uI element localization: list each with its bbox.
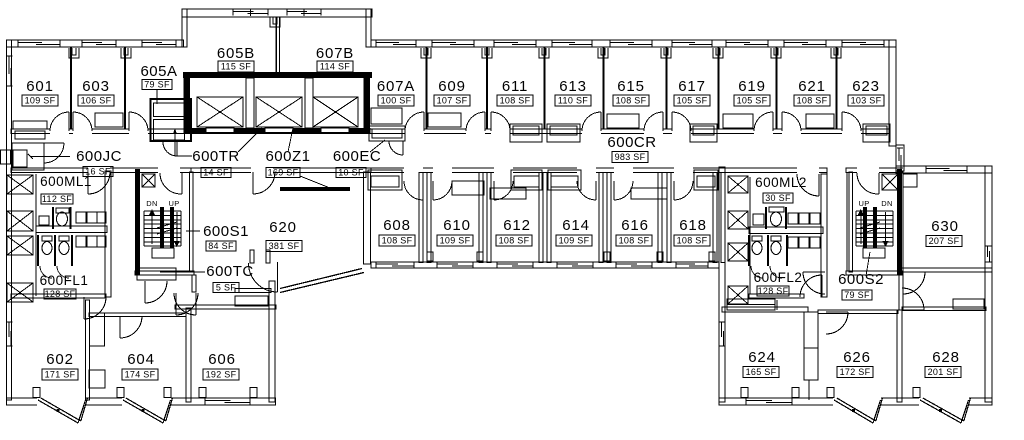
svg-text:171 SF: 171 SF <box>45 370 76 380</box>
svg-text:600FL2: 600FL2 <box>754 270 803 285</box>
svg-text:109 SF: 109 SF <box>440 236 471 246</box>
svg-text:109 SF: 109 SF <box>25 96 56 106</box>
svg-text:165 SF: 165 SF <box>746 367 777 377</box>
svg-text:79 SF: 79 SF <box>844 290 870 300</box>
svg-text:79 SF: 79 SF <box>144 80 170 90</box>
svg-text:600FL1: 600FL1 <box>40 273 89 288</box>
svg-text:174 SF: 174 SF <box>125 370 156 380</box>
svg-text:600EC: 600EC <box>333 148 381 165</box>
svg-text:614: 614 <box>562 217 589 234</box>
svg-text:601: 601 <box>26 78 53 95</box>
svg-text:616: 616 <box>621 217 648 234</box>
svg-text:626: 626 <box>843 349 870 366</box>
svg-text:103 SF: 103 SF <box>851 96 882 106</box>
svg-text:108 SF: 108 SF <box>500 96 531 106</box>
svg-text:609: 609 <box>438 78 465 95</box>
svg-text:109 SF: 109 SF <box>559 236 590 246</box>
svg-text:608: 608 <box>383 217 410 234</box>
svg-text:607B: 607B <box>316 45 354 62</box>
svg-text:UP: UP <box>858 199 869 208</box>
svg-text:600TR: 600TR <box>192 148 240 165</box>
svg-text:619: 619 <box>738 78 765 95</box>
svg-text:600JC: 600JC <box>76 148 122 165</box>
svg-text:128 SF: 128 SF <box>758 286 789 296</box>
svg-text:618: 618 <box>679 217 706 234</box>
svg-text:14 SF: 14 SF <box>203 168 229 178</box>
svg-text:108 SF: 108 SF <box>382 236 413 246</box>
svg-text:172 SF: 172 SF <box>840 367 871 377</box>
svg-text:624: 624 <box>748 349 775 366</box>
svg-text:84 SF: 84 SF <box>208 241 234 251</box>
svg-text:10 SF: 10 SF <box>338 168 364 178</box>
svg-text:600TC: 600TC <box>206 263 254 280</box>
svg-text:611: 611 <box>502 78 528 95</box>
svg-text:201 SF: 201 SF <box>928 367 959 377</box>
svg-text:381 SF: 381 SF <box>269 241 300 251</box>
svg-text:108 SF: 108 SF <box>797 96 828 106</box>
svg-text:610: 610 <box>443 217 470 234</box>
svg-text:100 SF: 100 SF <box>381 96 412 106</box>
svg-text:106 SF: 106 SF <box>81 96 112 106</box>
svg-text:605B: 605B <box>217 45 255 62</box>
svg-text:107 SF: 107 SF <box>437 96 468 106</box>
svg-text:DN: DN <box>146 199 157 208</box>
svg-text:110 SF: 110 SF <box>558 96 588 106</box>
svg-text:108 SF: 108 SF <box>677 236 708 246</box>
svg-text:613: 613 <box>559 78 586 95</box>
svg-text:606: 606 <box>208 351 235 368</box>
svg-text:612: 612 <box>503 217 530 234</box>
svg-text:605A: 605A <box>140 63 177 80</box>
svg-text:617: 617 <box>678 78 705 95</box>
svg-text:108 SF: 108 SF <box>619 236 650 246</box>
svg-text:30 SF: 30 SF <box>765 193 791 203</box>
svg-text:603: 603 <box>82 78 109 95</box>
svg-text:5 SF: 5 SF <box>216 283 236 293</box>
svg-text:114 SF: 114 SF <box>320 62 350 72</box>
svg-text:620: 620 <box>269 219 296 236</box>
svg-text:105 SF: 105 SF <box>677 96 708 106</box>
svg-text:615: 615 <box>617 78 644 95</box>
svg-text:607A: 607A <box>377 78 415 95</box>
svg-text:192 SF: 192 SF <box>206 370 237 380</box>
svg-text:983 SF: 983 SF <box>615 152 646 162</box>
svg-text:108 SF: 108 SF <box>499 236 530 246</box>
svg-text:628: 628 <box>932 349 959 366</box>
svg-text:623: 623 <box>852 78 879 95</box>
svg-text:630: 630 <box>931 218 958 235</box>
svg-text:UP: UP <box>168 199 179 208</box>
svg-text:DN: DN <box>881 199 892 208</box>
svg-text:207 SF: 207 SF <box>929 236 960 246</box>
svg-text:115 SF: 115 SF <box>221 62 251 72</box>
svg-text:600CR: 600CR <box>607 134 656 151</box>
svg-text:621: 621 <box>798 78 825 95</box>
svg-text:600S1: 600S1 <box>203 223 249 240</box>
svg-text:108 SF: 108 SF <box>616 96 647 106</box>
svg-text:105 SF: 105 SF <box>737 96 768 106</box>
svg-text:602: 602 <box>46 351 73 368</box>
svg-text:128 SF: 128 SF <box>45 289 76 299</box>
svg-text:600S2: 600S2 <box>838 271 884 288</box>
svg-text:604: 604 <box>127 351 154 368</box>
svg-text:169 SF: 169 SF <box>268 168 299 178</box>
svg-text:600ML1: 600ML1 <box>40 174 92 189</box>
svg-text:112 SF: 112 SF <box>42 194 72 204</box>
